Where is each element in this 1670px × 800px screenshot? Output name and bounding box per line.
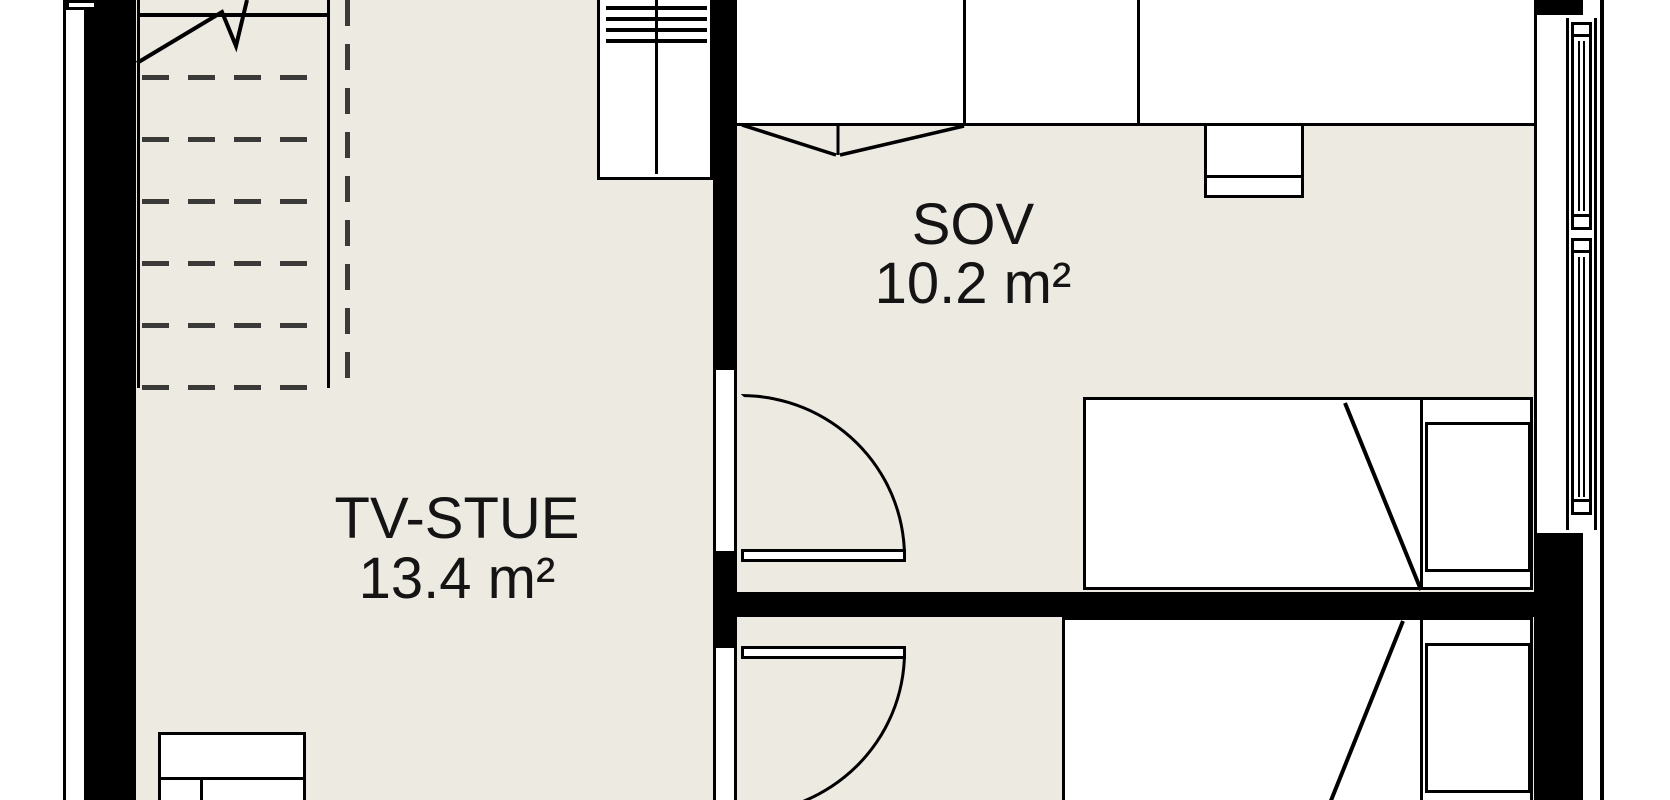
stair-tread-line (142, 385, 326, 390)
room-area-tv-stue: 13.4 m² (257, 550, 657, 608)
door-leaf-sov (741, 549, 906, 562)
sofa-seat-line (161, 777, 303, 780)
cabinet-shelf-line (606, 39, 707, 43)
closet-divider (1137, 0, 1140, 123)
shelf-front-line (1207, 175, 1301, 178)
window-sash-cap (1571, 214, 1592, 230)
window-sash (1571, 238, 1592, 515)
door-leaf-bedroom2 (741, 646, 906, 659)
bed-cover-diagonal (1086, 400, 1536, 593)
cabinet-shelf-line (606, 6, 707, 10)
bed-bedroom2 (1062, 617, 1533, 800)
wardrobe-cabinet (597, 0, 713, 180)
stair-tread-line (142, 75, 326, 80)
closet (737, 0, 1534, 126)
cabinet-shelf-line (606, 17, 707, 21)
stair-tread-line (142, 323, 326, 328)
stair-right-rail (327, 0, 330, 388)
room-area-sov: 10.2 m² (773, 255, 1173, 313)
closet-door-swing (735, 122, 975, 162)
right-wall-top-block (1537, 0, 1583, 15)
window-sash (1571, 22, 1592, 230)
interior-wall-vertical (713, 0, 737, 357)
right-exterior-wall (1537, 533, 1583, 800)
door-opening-line (734, 369, 737, 551)
stair-outer-dashed-line (345, 0, 350, 386)
bed-cover-diagonal (1065, 620, 1536, 800)
floor-plan: SOV 10.2 m² TV-STUE 13.4 m² (0, 0, 1670, 800)
right-exterior-face-line (1600, 0, 1604, 800)
stair-tread-line (142, 199, 326, 204)
window-sash-cap (1571, 22, 1592, 37)
closet-divider (963, 0, 966, 123)
cabinet-divider (655, 0, 658, 174)
left-exterior-wall (84, 0, 136, 800)
bed-sov (1083, 397, 1533, 590)
room-label-sov: SOV (773, 196, 1173, 254)
window-glass-lines (1578, 41, 1585, 211)
sofa (158, 732, 306, 800)
door-opening-line (713, 369, 716, 551)
wall-shelf (1204, 126, 1304, 198)
window-glass-lines (1578, 257, 1585, 497)
left-exterior-face-line (63, 0, 66, 800)
stair-break-line (95, 0, 265, 70)
stair-tread-line (142, 137, 326, 142)
sofa-cushion-line (200, 780, 203, 800)
wall-detail-block (66, 0, 97, 10)
window-frame-line (1566, 18, 1569, 530)
interior-wall-vertical (713, 551, 737, 648)
stair-tread-line (142, 261, 326, 266)
interior-wall-horizontal (737, 592, 1583, 617)
cabinet-shelf-line (606, 28, 707, 32)
window-sash-cap (1571, 499, 1592, 515)
room-label-tv-stue: TV-STUE (257, 490, 657, 548)
door-opening-line (713, 648, 716, 800)
window-frame-line (1594, 18, 1597, 530)
door-opening-line (734, 648, 737, 800)
window-sash-cap (1571, 238, 1592, 253)
